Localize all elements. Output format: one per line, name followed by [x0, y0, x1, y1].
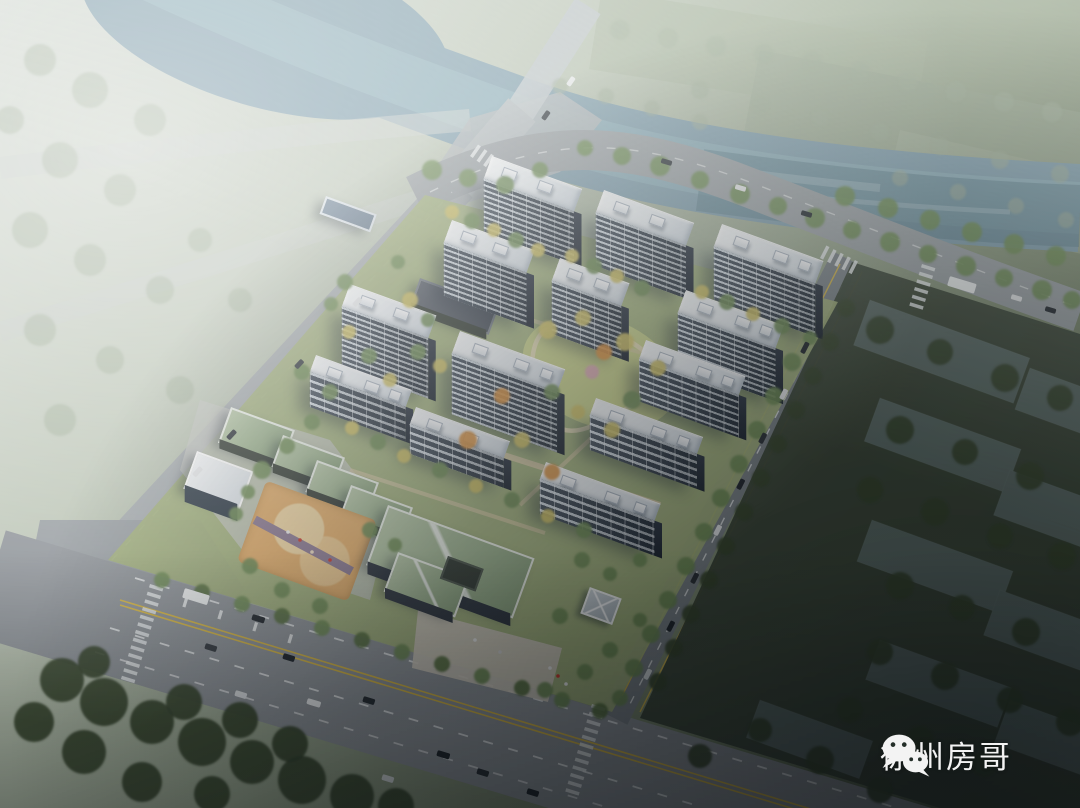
car: [192, 466, 203, 477]
tree: [867, 639, 893, 665]
tree: [24, 44, 56, 76]
tree: [946, 82, 966, 102]
tree: [574, 552, 590, 568]
tree: [677, 557, 695, 575]
tree: [843, 221, 861, 239]
aerial-rendering: 徐州房哥: [0, 0, 1080, 808]
tree: [649, 673, 667, 691]
tree: [806, 746, 834, 774]
tree: [991, 151, 1009, 169]
person: [564, 682, 568, 686]
tree: [361, 348, 377, 364]
tree: [898, 72, 918, 92]
tree: [603, 567, 617, 581]
tree: [1004, 234, 1024, 254]
tree: [871, 123, 889, 141]
tree: [24, 314, 56, 346]
tree: [878, 198, 898, 218]
tree: [735, 503, 753, 521]
tree: [104, 174, 136, 206]
car: [306, 698, 321, 708]
tree: [554, 692, 570, 708]
tree: [571, 405, 585, 419]
tree: [850, 62, 870, 82]
tree: [242, 558, 258, 574]
person: [310, 550, 314, 554]
tree: [394, 644, 410, 660]
car: [381, 774, 394, 783]
trees: [0, 20, 1080, 808]
tree: [304, 414, 320, 430]
tree: [752, 469, 770, 487]
tree: [616, 333, 634, 351]
tree: [837, 697, 863, 723]
tree: [445, 205, 459, 219]
tree: [222, 702, 258, 738]
tree: [610, 269, 624, 283]
tree: [577, 140, 593, 156]
tree: [330, 774, 374, 808]
tree: [378, 788, 414, 808]
tree: [166, 376, 194, 404]
tree: [433, 359, 447, 373]
bus: [947, 276, 977, 294]
tree: [857, 477, 883, 503]
tree: [719, 294, 735, 310]
car: [713, 524, 722, 536]
tree: [835, 186, 855, 206]
tree: [576, 522, 592, 538]
tree: [927, 339, 953, 365]
tree: [746, 307, 760, 321]
tree: [459, 431, 477, 449]
tree: [575, 310, 591, 326]
tree: [44, 404, 76, 436]
tree: [950, 184, 966, 200]
tree: [892, 170, 908, 186]
tree: [592, 703, 608, 719]
tree: [345, 421, 359, 435]
tree: [383, 373, 397, 387]
people: [286, 530, 568, 686]
tree: [1032, 280, 1052, 300]
vehicles: [182, 76, 1056, 797]
tree: [539, 321, 557, 339]
tree: [787, 401, 805, 419]
tree: [410, 344, 426, 360]
tree: [867, 777, 893, 803]
tree: [354, 632, 370, 648]
tree: [692, 114, 708, 130]
tree: [370, 434, 386, 450]
tree: [598, 88, 614, 104]
tree: [919, 245, 937, 263]
tree: [178, 718, 226, 766]
tree: [730, 455, 748, 473]
car: [736, 478, 745, 490]
tree: [991, 364, 1019, 392]
tree: [544, 464, 560, 480]
tree: [122, 762, 162, 802]
tree: [604, 422, 620, 438]
tree: [274, 582, 290, 598]
car: [800, 341, 810, 354]
tree: [241, 485, 255, 499]
tree: [397, 449, 411, 463]
car: [362, 696, 375, 705]
tree: [388, 538, 402, 552]
tree: [805, 208, 825, 228]
tree: [391, 255, 405, 269]
tree: [78, 646, 110, 678]
tree: [469, 479, 483, 493]
tree: [504, 492, 520, 508]
tree: [623, 391, 641, 409]
tree: [42, 142, 78, 178]
tree: [1051, 165, 1069, 183]
tree: [1008, 198, 1024, 214]
watermark: 徐州房哥: [880, 732, 1012, 777]
person: [298, 538, 302, 542]
car: [251, 614, 265, 624]
tree: [274, 608, 290, 624]
car: [666, 620, 675, 632]
car: [541, 110, 551, 121]
tree: [487, 223, 501, 237]
tree: [514, 432, 530, 448]
tree: [612, 690, 628, 706]
tree: [886, 416, 914, 444]
tree: [166, 684, 202, 720]
tree: [931, 662, 959, 690]
tree: [514, 680, 530, 696]
tree: [577, 664, 593, 680]
tree: [642, 625, 660, 643]
tree: [464, 213, 480, 229]
tree: [962, 222, 982, 242]
tree: [1063, 291, 1080, 309]
tree: [322, 384, 338, 400]
tree: [96, 346, 124, 374]
tree: [994, 92, 1014, 112]
tree: [748, 718, 772, 742]
tree: [633, 553, 647, 567]
tree: [337, 274, 353, 290]
tree: [537, 682, 553, 698]
tree: [880, 232, 900, 252]
tree: [1047, 385, 1073, 411]
tree: [188, 228, 212, 252]
tree: [40, 658, 84, 702]
tree: [769, 435, 787, 453]
tree: [1058, 212, 1074, 228]
tree: [1016, 462, 1044, 490]
car: [436, 750, 450, 760]
tree: [659, 591, 677, 609]
tree: [474, 668, 490, 684]
tree: [421, 313, 435, 327]
tree: [665, 639, 683, 657]
tree: [278, 756, 326, 804]
tree: [72, 72, 108, 108]
tree: [682, 605, 700, 623]
tree: [1042, 102, 1062, 122]
car: [352, 297, 362, 308]
car: [476, 768, 489, 777]
tree: [74, 244, 106, 276]
wechat-icon: [880, 732, 932, 778]
tree: [634, 280, 650, 296]
tree: [658, 28, 678, 48]
tree: [866, 316, 894, 344]
tree: [695, 285, 709, 299]
tree: [0, 106, 24, 134]
tree: [997, 687, 1023, 713]
tree: [541, 509, 555, 523]
person: [556, 674, 560, 678]
tree: [821, 333, 839, 351]
tree: [531, 243, 545, 257]
tree: [650, 156, 670, 176]
tree: [496, 176, 514, 194]
tree: [194, 776, 230, 808]
tree: [625, 659, 643, 677]
tree: [146, 276, 174, 304]
tree: [508, 232, 524, 248]
car: [204, 643, 217, 652]
tree: [565, 249, 579, 263]
tree: [695, 523, 713, 541]
person: [286, 530, 290, 534]
tree: [134, 104, 166, 136]
tree: [688, 744, 712, 768]
tree: [312, 598, 328, 614]
tree: [253, 461, 271, 479]
tree: [706, 36, 726, 56]
tree: [769, 197, 787, 215]
tree: [272, 726, 308, 762]
tree: [633, 613, 647, 627]
tree: [434, 656, 450, 672]
tree: [12, 212, 48, 248]
car: [1045, 306, 1057, 314]
tree: [80, 678, 128, 726]
tree: [952, 439, 978, 465]
tree: [544, 384, 560, 400]
car: [234, 690, 247, 699]
person: [498, 650, 502, 654]
tree: [532, 162, 548, 178]
person: [473, 638, 477, 642]
tree: [995, 269, 1013, 287]
tree: [691, 171, 709, 189]
tree: [802, 52, 822, 72]
tree: [717, 537, 735, 555]
person: [328, 558, 332, 562]
tree: [920, 210, 940, 230]
tree: [691, 81, 709, 99]
car: [1011, 294, 1023, 302]
tree: [314, 620, 330, 636]
tree: [1046, 246, 1066, 266]
tree: [1048, 542, 1076, 570]
tree: [613, 147, 631, 165]
tree: [700, 571, 718, 589]
tree: [751, 95, 769, 113]
tree: [783, 353, 801, 371]
tree: [754, 44, 774, 64]
tree: [931, 137, 949, 155]
tree: [230, 740, 274, 784]
tree: [229, 507, 243, 521]
tree: [956, 256, 976, 276]
car: [526, 788, 539, 797]
tree: [585, 365, 599, 379]
tree: [14, 702, 54, 742]
tree: [62, 730, 106, 774]
tree: [362, 522, 378, 538]
tree: [811, 109, 829, 127]
tree: [234, 596, 250, 612]
scene-foreground: [0, 0, 1080, 808]
tree: [774, 318, 790, 334]
tree: [1056, 708, 1080, 736]
tree: [154, 572, 170, 588]
tree: [586, 258, 602, 274]
car: [282, 653, 295, 662]
car: [690, 572, 699, 584]
tree: [644, 100, 660, 116]
tree: [422, 160, 442, 180]
tree: [459, 169, 477, 187]
tree: [279, 438, 295, 454]
tree: [837, 299, 855, 317]
tree: [602, 642, 618, 658]
tree: [596, 344, 612, 360]
tree: [921, 498, 949, 526]
tree: [342, 325, 356, 339]
tree: [432, 462, 448, 478]
tree: [610, 20, 630, 40]
tree: [402, 292, 418, 308]
tree: [552, 78, 568, 94]
person: [548, 666, 552, 670]
tree: [1012, 618, 1040, 646]
tree: [804, 367, 822, 385]
tree: [949, 595, 975, 621]
tree: [650, 360, 666, 376]
tree: [552, 608, 568, 624]
tree: [324, 297, 338, 311]
tree: [886, 572, 914, 600]
car: [226, 429, 237, 440]
tree: [228, 288, 252, 312]
tree: [987, 523, 1013, 549]
tree: [712, 489, 730, 507]
tree: [494, 388, 510, 404]
